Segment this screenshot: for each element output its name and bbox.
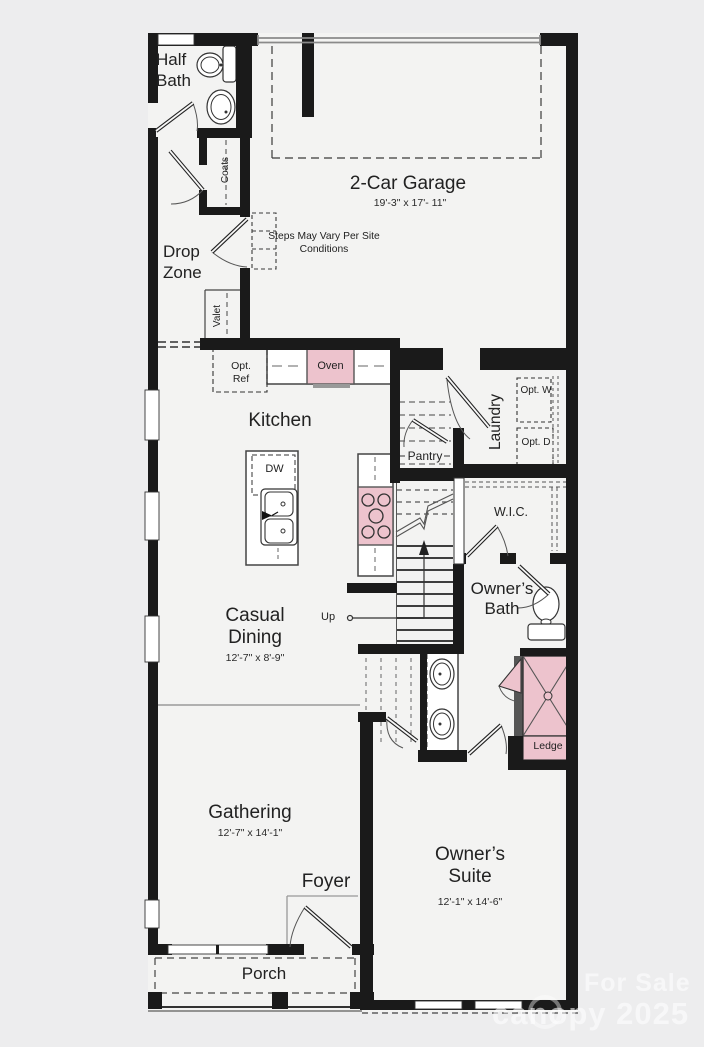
- room-label-porch: Porch: [236, 963, 292, 984]
- room-label-kitchen: Kitchen: [238, 409, 322, 433]
- room-label-owners-bath: Owner’s Bath: [468, 579, 536, 620]
- stairs-up-label: Up: [321, 611, 335, 625]
- room-label-coats: Coats: [218, 146, 232, 194]
- room-label-drop-zone: Drop Zone: [163, 241, 211, 284]
- fixture-label-dw: DW: [253, 463, 296, 477]
- room-label-owners-suite: Owner’s Suite: [418, 844, 522, 888]
- cooktop: [358, 487, 393, 545]
- fixture-label-ledge: Ledge: [523, 740, 573, 753]
- room-dims-gathering: 12'-7" x 14'-1": [198, 827, 302, 840]
- room-label-wic: W.I.C.: [483, 505, 539, 521]
- fixture-label-opt-ref: Opt. Ref: [224, 360, 258, 385]
- watermark-canopy: canopy 2025: [492, 996, 689, 1032]
- fixture-label-opt-d: Opt. D: [520, 437, 552, 449]
- room-dims-garage: 19'-3" x 17'- 11": [330, 197, 490, 210]
- fixture-label-opt-w: Opt. W: [520, 385, 552, 397]
- room-label-garage: 2-Car Garage: [328, 172, 488, 196]
- window-mullion: [216, 945, 219, 954]
- room-label-pantry: Pantry: [399, 449, 451, 464]
- vanity-double-sink: [427, 651, 458, 752]
- room-label-casual-dining: Casual Dining: [203, 605, 307, 649]
- note-steps-may-vary: Steps May Vary Per Site Conditions: [267, 231, 381, 257]
- floorplan-page: Half Bath Coats Drop Zone Valet 2-Car Ga…: [0, 0, 704, 1047]
- wic-half-wall: [454, 478, 464, 564]
- room-dims-casual-dining: 12'-7" x 8'-9": [203, 652, 307, 665]
- room-label-half-bath: Half Bath: [156, 49, 204, 92]
- room-label-foyer: Foyer: [296, 870, 356, 894]
- watermark-for-sale: For Sale: [584, 969, 691, 998]
- room-label-valet: Valet: [210, 293, 224, 339]
- kitchen-sink: [261, 489, 297, 545]
- room-label-gathering: Gathering: [198, 801, 302, 825]
- fixture-label-oven: Oven: [307, 360, 354, 374]
- toilet-halfbath: [207, 90, 235, 124]
- room-dims-owners-suite: 12'-1" x 14'-6": [418, 896, 522, 909]
- room-label-laundry: Laundry: [487, 386, 505, 458]
